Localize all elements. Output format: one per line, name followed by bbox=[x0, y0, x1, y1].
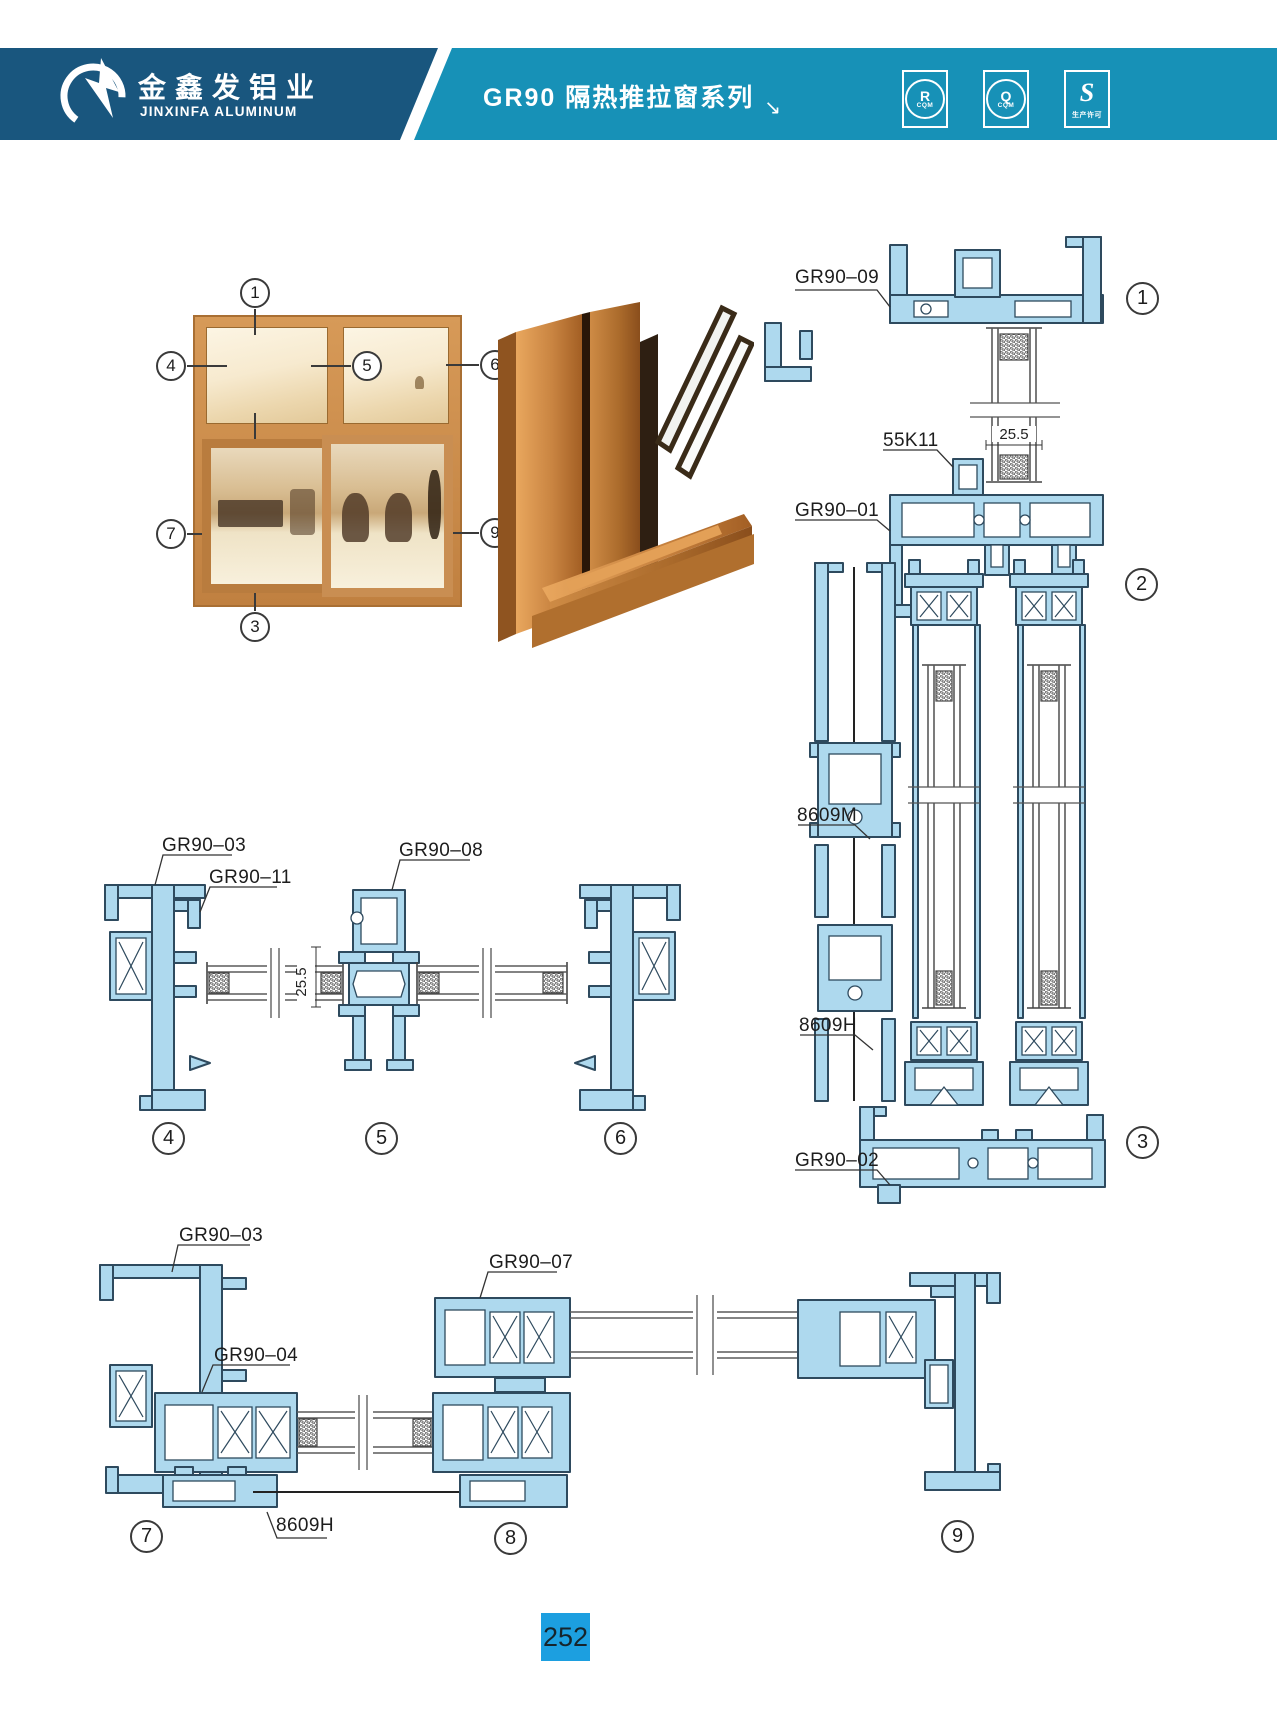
photo-callout-5: 5 bbox=[352, 351, 382, 381]
section-marker-8: 8 bbox=[494, 1522, 527, 1555]
section-marker-3: 3 bbox=[1126, 1126, 1159, 1159]
chair-silhouette bbox=[342, 493, 369, 542]
sill-profile bbox=[860, 1107, 1105, 1203]
fixed-pane-left bbox=[206, 327, 328, 424]
window-product-photo bbox=[193, 315, 462, 607]
callout-line bbox=[254, 309, 256, 335]
leader-line bbox=[883, 450, 953, 467]
hanger-clip bbox=[953, 459, 983, 495]
label-upper-sash: GR90–07 bbox=[489, 1252, 573, 1274]
profile-3d-render bbox=[482, 282, 754, 650]
cqm-q-badge-icon: QCQM bbox=[983, 70, 1029, 128]
section-marker-1: 1 bbox=[1126, 282, 1159, 315]
leader-line bbox=[800, 1035, 873, 1050]
glass-unit bbox=[570, 1295, 827, 1375]
glass-thickness-dim: 25.5 bbox=[293, 967, 310, 996]
callout-line bbox=[446, 364, 479, 366]
section-marker-4: 4 bbox=[152, 1122, 185, 1155]
callout-line bbox=[311, 365, 351, 367]
arrow-icon: ↘ bbox=[764, 97, 783, 119]
sash-section bbox=[905, 560, 983, 1105]
leader-line bbox=[795, 290, 890, 307]
brand-name-cn: 金鑫发铝业 bbox=[138, 66, 323, 106]
jamb-profile-left bbox=[105, 885, 210, 1110]
brand-logo-icon bbox=[55, 56, 135, 134]
jamb-profile-right bbox=[575, 885, 680, 1110]
label-sill: GR90–02 bbox=[795, 1150, 879, 1172]
label-sash: GR90–04 bbox=[214, 1345, 298, 1367]
chair-silhouette bbox=[290, 489, 315, 535]
head-profile bbox=[765, 237, 1103, 381]
vertical-section-drawing: 25.5 bbox=[730, 235, 1160, 1210]
photo-callout-7: 7 bbox=[156, 519, 186, 549]
photo-callout-4: 4 bbox=[156, 351, 186, 381]
glass-unit: 25.5 bbox=[207, 947, 343, 1018]
photo-callout-1: 1 bbox=[240, 278, 270, 308]
bottom-connector-8609H bbox=[818, 925, 892, 1011]
section-marker-6: 6 bbox=[604, 1122, 637, 1155]
label-jamb-mid: GR90–03 bbox=[162, 835, 246, 857]
callout-line bbox=[187, 365, 227, 367]
section-marker-7: 7 bbox=[130, 1520, 163, 1553]
certification-badges: RCQM QCQM S生产许可 bbox=[902, 70, 1110, 128]
vase-silhouette bbox=[428, 470, 440, 539]
production-license-badge-icon: S生产许可 bbox=[1064, 70, 1110, 128]
label-mid-connector: 8609M bbox=[797, 805, 857, 827]
glass-unit bbox=[417, 948, 567, 1018]
page-number-tab: 252 bbox=[541, 1613, 590, 1661]
leader-line bbox=[480, 1272, 557, 1298]
sideboard-silhouette bbox=[218, 500, 284, 527]
section-marker-2: 2 bbox=[1125, 568, 1158, 601]
catalog-page: 金鑫发铝业 JINXINFA ALUMINUM GR90 隔热推拉窗系列↘ RC… bbox=[0, 0, 1277, 1721]
leader-line bbox=[200, 887, 277, 912]
label-bottom-connector: 8609H bbox=[799, 1015, 857, 1037]
brand-name-en: JINXINFA ALUMINUM bbox=[140, 104, 297, 119]
chair-silhouette bbox=[385, 493, 412, 542]
leader-line bbox=[392, 860, 470, 890]
section-marker-5: 5 bbox=[365, 1122, 398, 1155]
meeting-sash-upper bbox=[435, 1298, 570, 1377]
label-bottom-connector-b: 8609H bbox=[276, 1515, 334, 1537]
label-bead: GR90–11 bbox=[209, 867, 292, 889]
label-hanger-clip: 55K11 bbox=[883, 430, 939, 452]
page-header: 金鑫发铝业 JINXINFA ALUMINUM GR90 隔热推拉窗系列↘ RC… bbox=[0, 48, 1277, 140]
glass-unit bbox=[297, 1395, 433, 1470]
sliding-sash-right bbox=[322, 435, 453, 597]
label-jamb-bottom: GR90–03 bbox=[179, 1225, 263, 1247]
section-marker-9: 9 bbox=[941, 1520, 974, 1553]
photo-callout-3: 3 bbox=[240, 612, 270, 642]
label-head-profile: GR90–09 bbox=[795, 267, 879, 289]
cqm-r-badge-icon: RCQM bbox=[902, 70, 948, 128]
sash-profile bbox=[155, 1393, 297, 1472]
sash-profile-right bbox=[798, 1300, 935, 1378]
chandelier bbox=[415, 376, 424, 389]
glass-thickness-dim: 25.5 bbox=[999, 426, 1028, 443]
label-transom: GR90–01 bbox=[795, 500, 879, 522]
sliding-sash-left bbox=[202, 439, 333, 593]
label-interlock: GR90–08 bbox=[399, 840, 483, 862]
interlock-profile bbox=[339, 890, 419, 1070]
series-title: GR90 隔热推拉窗系列↘ bbox=[483, 78, 783, 114]
meeting-sash-lower bbox=[433, 1378, 570, 1472]
